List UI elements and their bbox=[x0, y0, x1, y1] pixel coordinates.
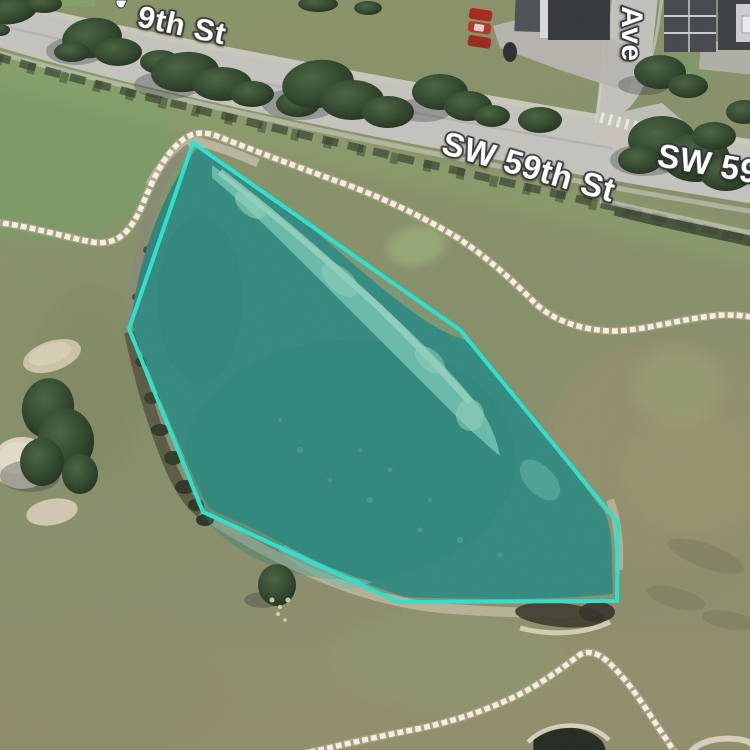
street-label-ave: Ave bbox=[615, 6, 648, 62]
satellite-map[interactable]: 9th St SW 59th St SW 59th St Ave bbox=[0, 0, 750, 750]
map-canvas[interactable]: 9th St SW 59th St SW 59th St Ave bbox=[0, 0, 750, 750]
